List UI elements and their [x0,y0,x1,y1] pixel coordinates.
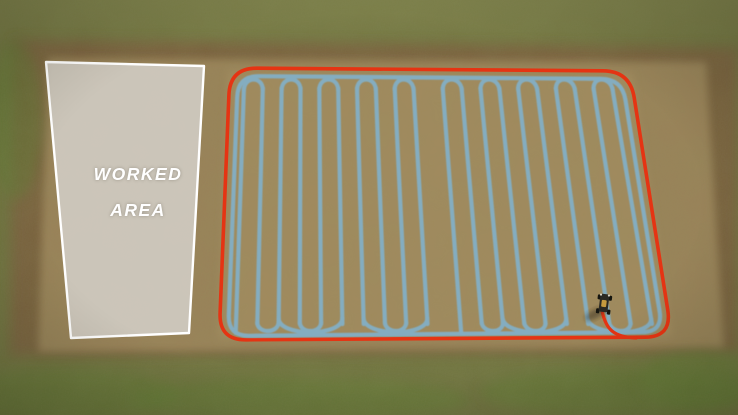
worked-area-label-line2: AREA [78,200,198,221]
worked-area-label-line1: WORKED [78,164,198,185]
worked-area-label: WORKED AREA [78,164,198,221]
aerial-field-scene: WORKED AREA [0,0,738,415]
